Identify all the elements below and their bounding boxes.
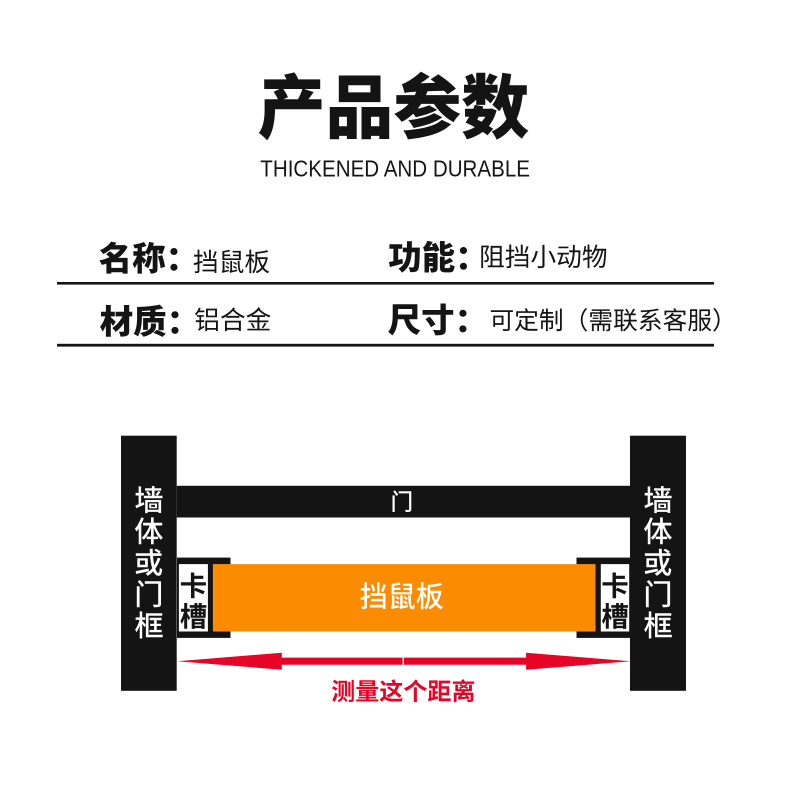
- svg-text:THICKENED AND DURABLE: THICKENED AND DURABLE: [260, 156, 530, 182]
